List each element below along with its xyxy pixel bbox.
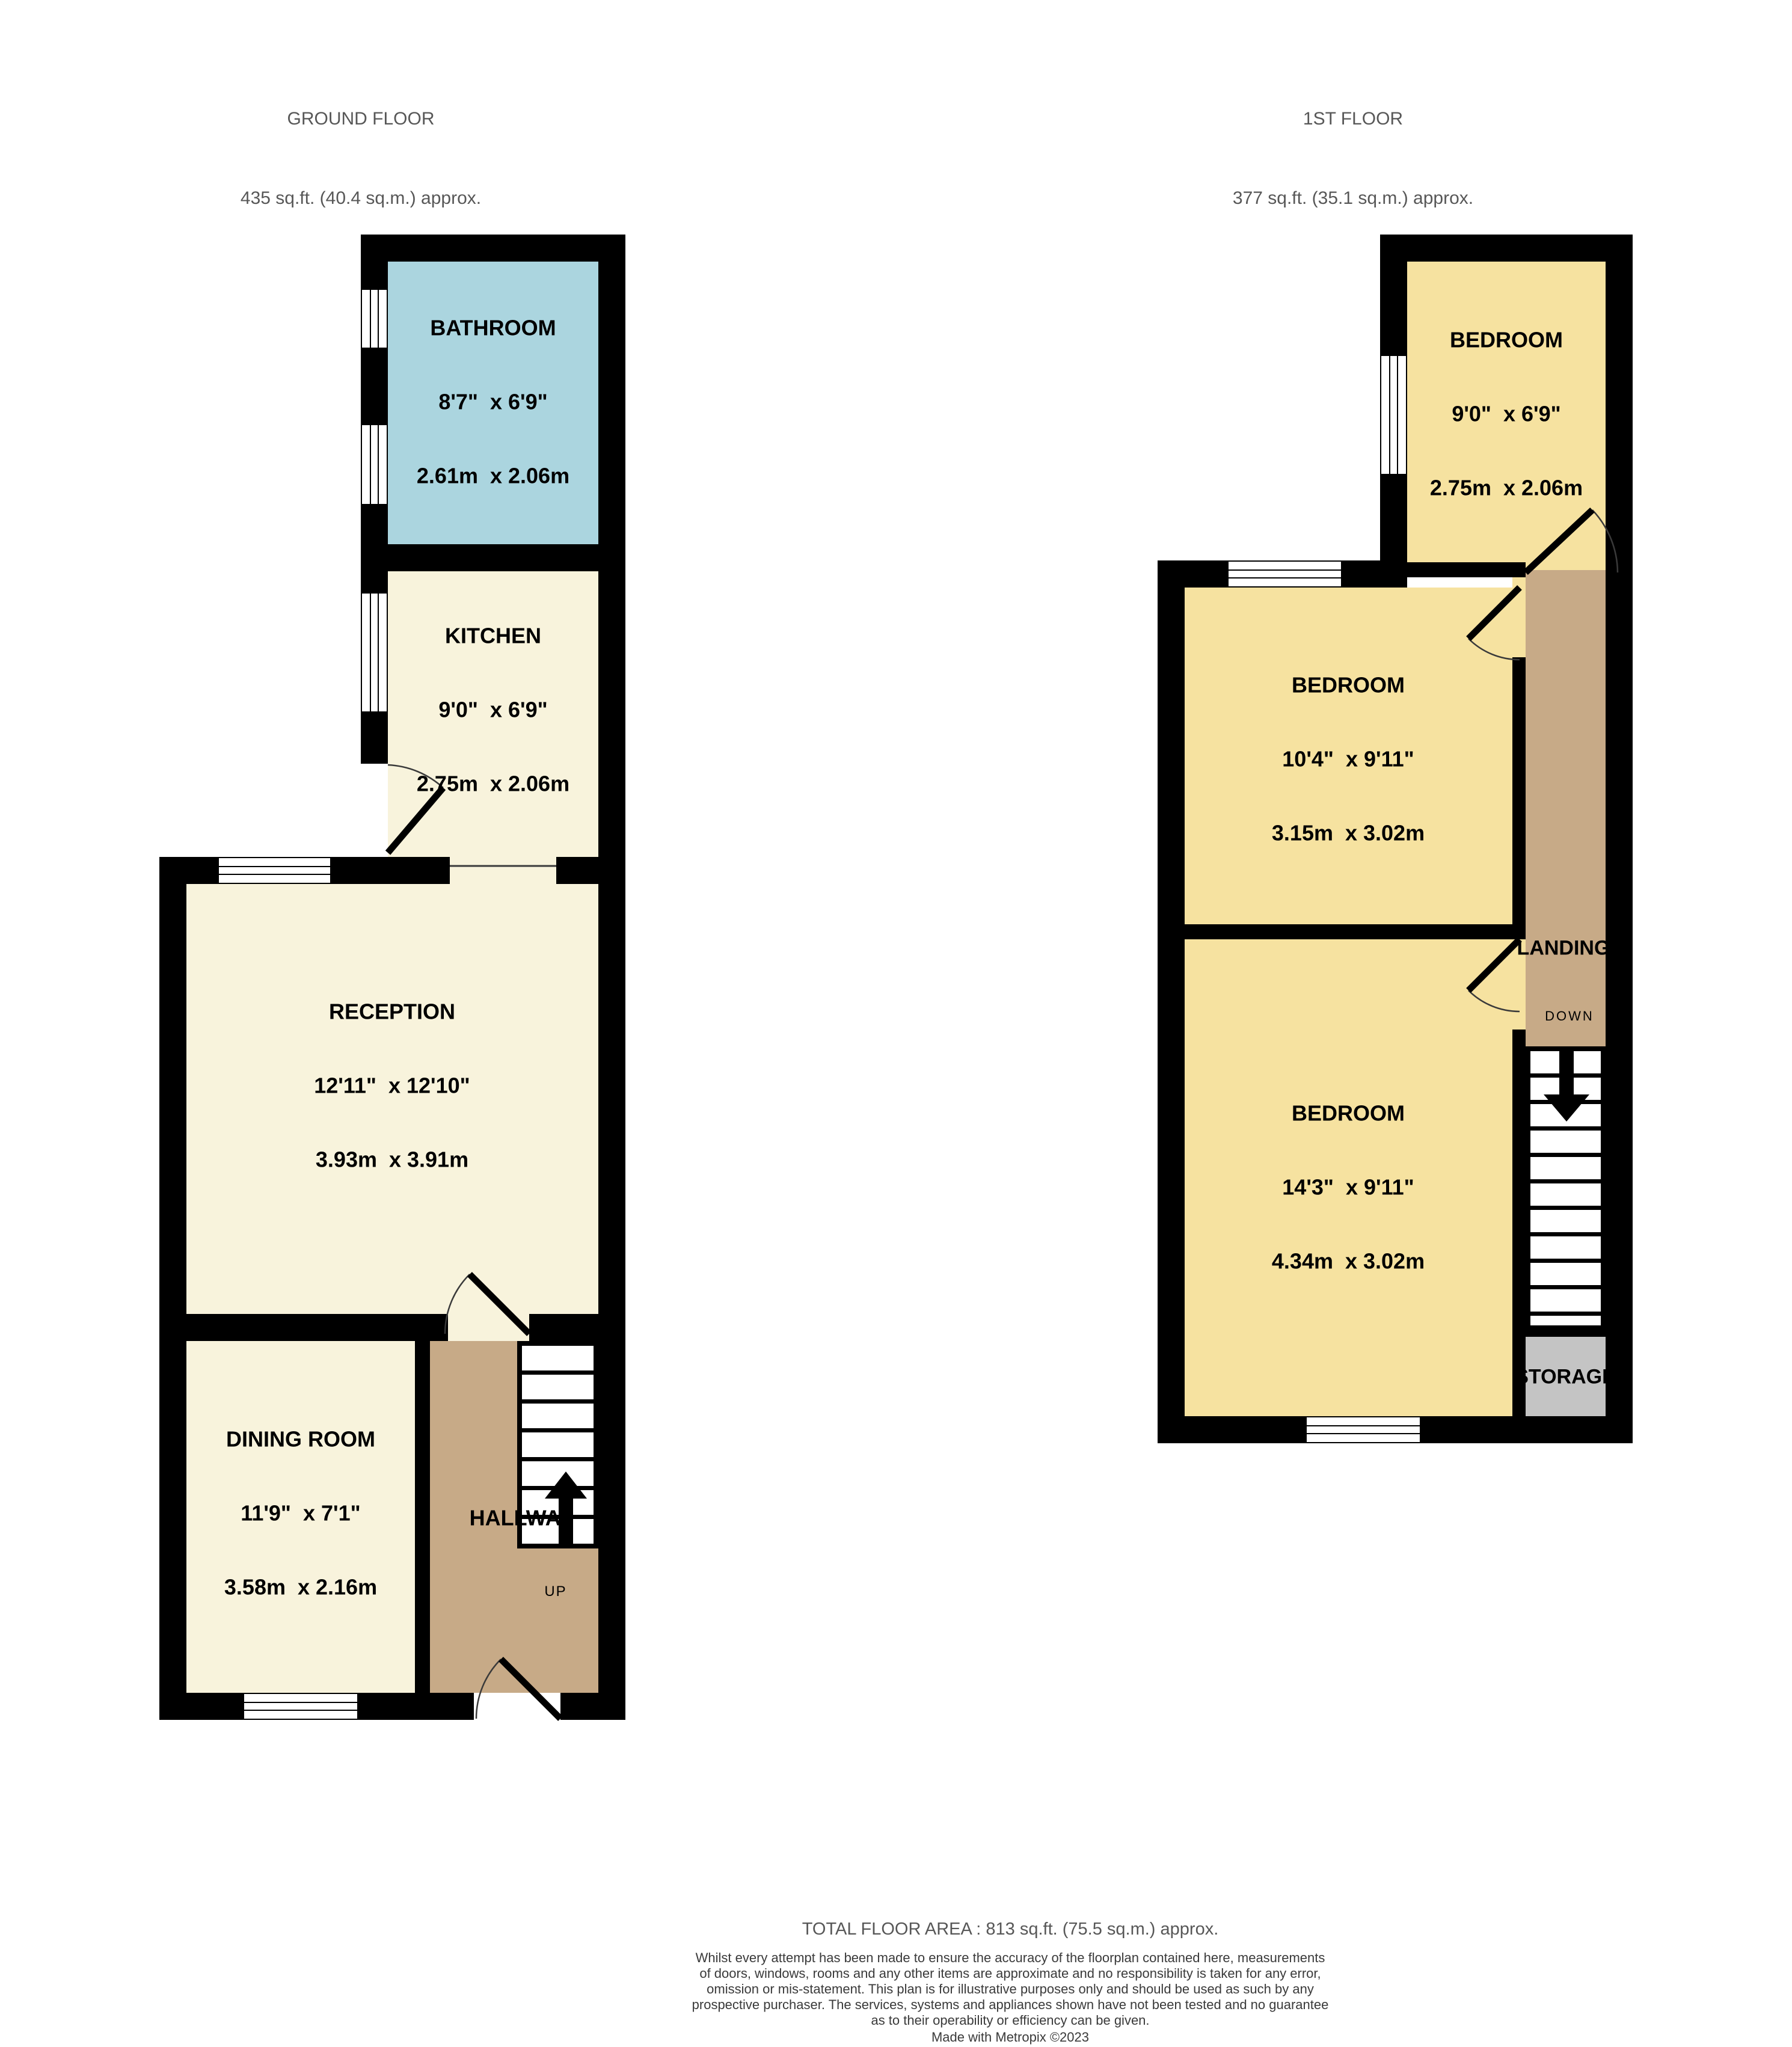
storage-label: STORAGE <box>1515 1365 1616 1390</box>
dining-room-label: DINING ROOM 11'9" x 7'1" 3.58m x 2.16m <box>224 1378 377 1649</box>
reception-hallway-doorway <box>448 1314 529 1341</box>
first-floor-header: 1ST FLOOR 377 sq.ft. (35.1 sq.m.) approx… <box>1112 53 1594 265</box>
wall <box>388 544 598 571</box>
bedroom-middle-door-gap <box>1512 577 1526 657</box>
down-label: DOWN <box>1545 1008 1594 1024</box>
hallway-label: HALLWAY <box>470 1456 574 1580</box>
front-door-opening <box>474 1693 560 1720</box>
floorplan-page: GROUND FLOOR 435 sq.ft. (40.4 sq.m.) app… <box>0 0 1792 2047</box>
first-floor-area: 377 sq.ft. (35.1 sq.m.) approx. <box>1112 185 1594 212</box>
landing-label: LANDING <box>1517 936 1610 961</box>
wall <box>1158 588 1185 1443</box>
wall <box>1606 235 1633 1443</box>
dining-room-window <box>243 1693 358 1720</box>
wall <box>159 884 186 1720</box>
up-label: UP <box>544 1583 566 1600</box>
reception-window <box>218 857 331 884</box>
disclaimer-line: omission or mis-statement. This plan is … <box>409 1981 1612 1997</box>
bedroom-bottom-label: BEDROOM 14'3" x 9'11" 4.34m x 3.02m <box>1272 1052 1425 1323</box>
wall <box>598 235 625 1720</box>
bedroom-bottom-window <box>1306 1416 1421 1443</box>
ground-floor-area: 435 sq.ft. (40.4 sq.m.) approx. <box>120 185 601 212</box>
disclaimer-line: as to their operability or efficiency ca… <box>409 2013 1612 2028</box>
bedroom-top-window <box>1380 355 1407 475</box>
down-arrow-shaft <box>1559 1048 1574 1096</box>
disclaimer-line: Whilst every attempt has been made to en… <box>409 1950 1612 1966</box>
bathroom-label: BATHROOM 8'7" x 6'9" 2.61m x 2.06m <box>417 266 569 538</box>
wall <box>1526 1330 1606 1337</box>
bedroom-middle-window <box>1227 560 1342 588</box>
metropix-credit: Made with Metropix ©2023 <box>409 2030 1612 2045</box>
total-floor-area: TOTAL FLOOR AREA : 813 sq.ft. (75.5 sq.m… <box>409 1920 1612 1939</box>
bedroom-top-label: BEDROOM 9'0" x 6'9" 2.75m x 2.06m <box>1430 278 1583 550</box>
ground-floor-title: GROUND FLOOR <box>120 106 601 132</box>
bathroom-window <box>361 289 388 349</box>
bathroom-window <box>361 424 388 505</box>
footer: TOTAL FLOOR AREA : 813 sq.ft. (75.5 sq.m… <box>409 1920 1612 2045</box>
bedroom-middle-label: BEDROOM 10'4" x 9'11" 3.15m x 3.02m <box>1272 624 1425 895</box>
ground-floor-header: GROUND FLOOR 435 sq.ft. (40.4 sq.m.) app… <box>120 53 601 265</box>
reception-label: RECEPTION 12'11" x 12'10" 3.93m x 3.91m <box>314 950 470 1221</box>
down-arrow-icon <box>1544 1094 1589 1122</box>
wall <box>415 1341 430 1693</box>
wall <box>186 1314 598 1341</box>
kitchen-reception-opening <box>450 857 556 884</box>
wall <box>1512 657 1526 924</box>
kitchen-label: KITCHEN 9'0" x 6'9" 2.75m x 2.06m <box>417 574 569 845</box>
disclaimer-line: of doors, windows, rooms and any other i… <box>409 1966 1612 1981</box>
disclaimer-line: prospective purchaser. The services, sys… <box>409 1997 1612 2013</box>
wall <box>1512 1030 1526 1416</box>
kitchen-window <box>361 592 388 713</box>
landing-floor <box>1526 570 1606 1046</box>
wall <box>1185 924 1526 939</box>
first-floor-title: 1ST FLOOR <box>1112 106 1594 132</box>
